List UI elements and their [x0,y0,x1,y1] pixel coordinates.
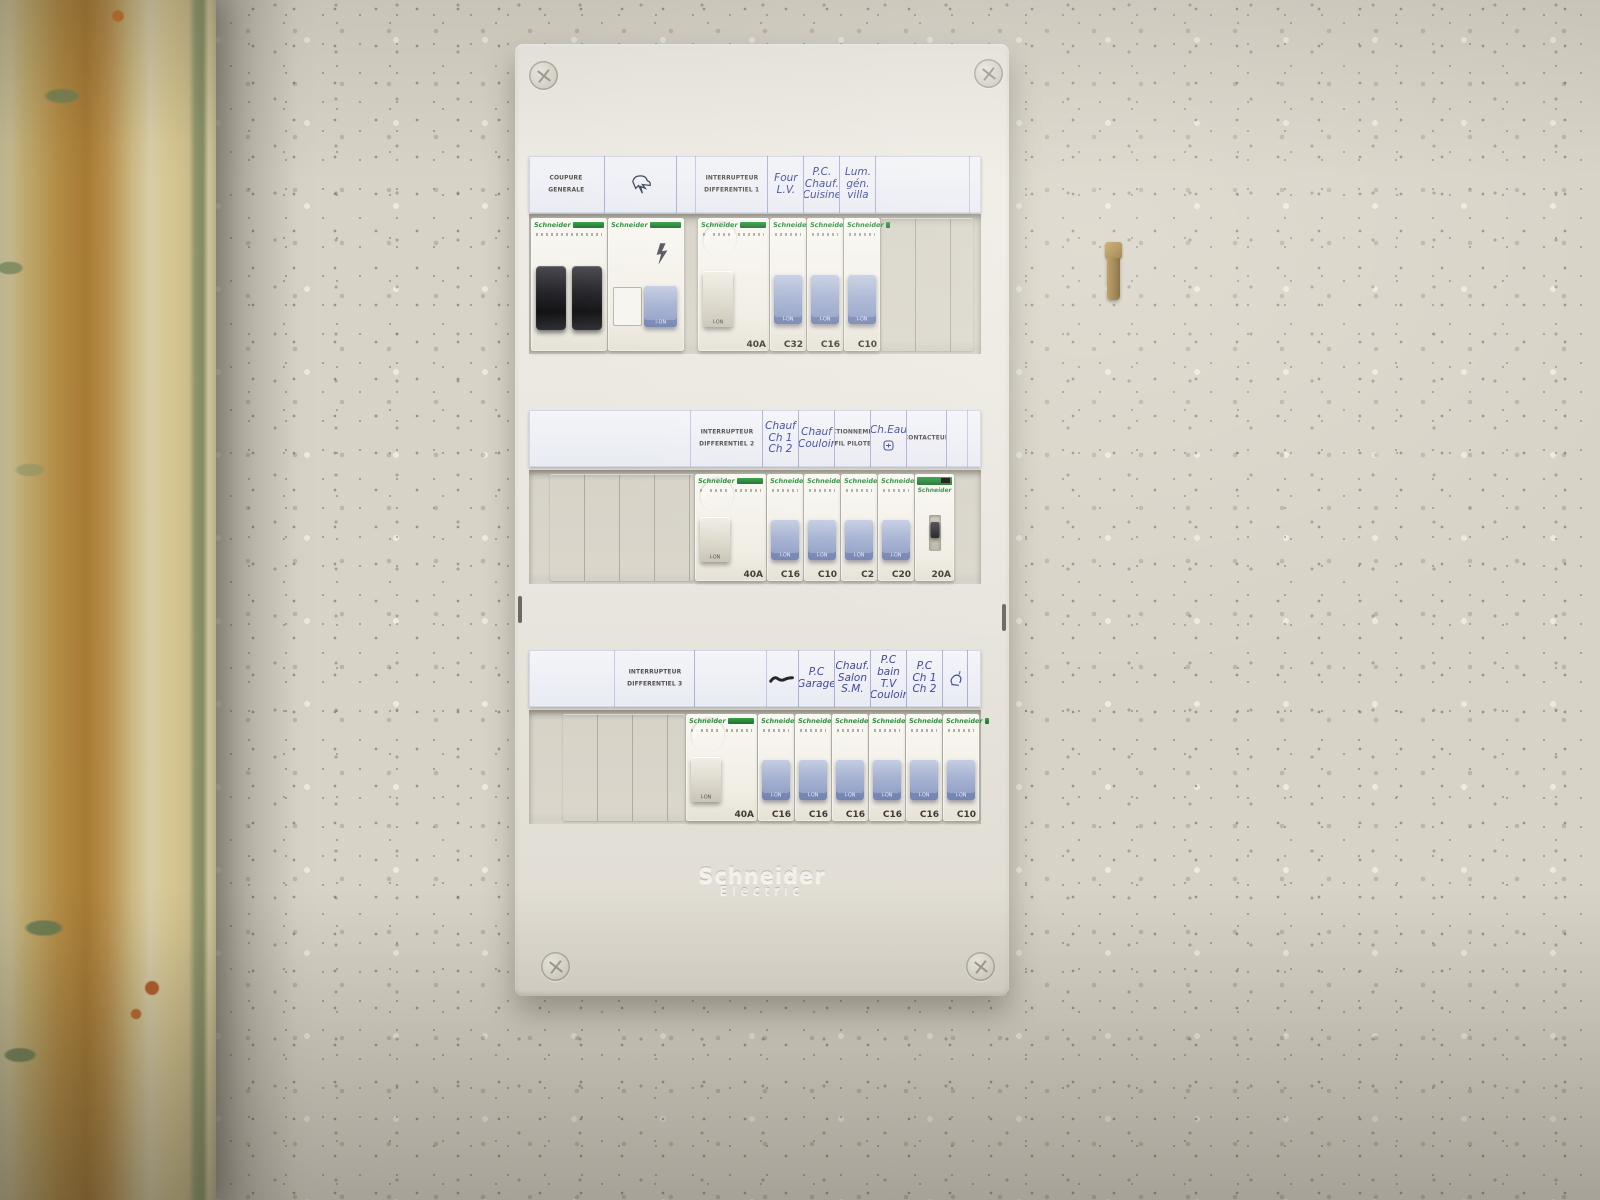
toggle-label: I-ON [913,792,935,798]
schneider-brand: Schneider [686,714,757,726]
label-strip-row-2: INTERRUPTEURDIFFERENTIEL 2ChaufCh 1Ch 2C… [529,410,981,467]
label-cell: P.CbainT.VCouloir [871,650,907,707]
breaker-toggle[interactable]: I-ON [811,274,839,325]
breaker-rating: C16 [821,340,840,350]
breaker-rating: 40A [747,340,767,350]
contactor-green-stripe [917,477,952,485]
schneider-brand-text: Schneider [834,717,872,725]
schneider-brand-bar [985,718,989,724]
photo-scene: COUPUREGENERALEINTERRUPTEURDIFFERENTIEL … [0,0,1600,1200]
schneider-brand-text: Schneider [697,477,735,485]
main-toggle-group [536,266,603,330]
panel-screw [966,952,995,981]
label-cell [876,156,970,213]
schneider-brand-text: Schneider [846,221,884,229]
breaker-toggle[interactable]: I-ON [808,519,836,560]
contactor-switch[interactable] [930,522,939,538]
toggle-label: I-ON [811,552,833,558]
schneider-brand-bar [728,718,754,724]
schneider-brand: Schneider [698,218,769,230]
breaker-toggle[interactable]: I-ON [799,759,827,800]
module-microprint [837,729,863,732]
schneider-brand: Schneider [869,714,905,726]
breaker-toggle[interactable]: I-ON [848,274,876,325]
breaker-rating: C16 [920,810,939,820]
breaker-module: SchneiderI-ONC16 [767,474,803,581]
rail-gap [531,470,549,584]
schneider-brand: Schneider [608,218,684,230]
module-microprint [911,729,937,732]
panel-screw [529,61,558,90]
label-cell: ChaufCouloir [799,410,835,467]
schneider-brand-bar [740,222,766,228]
breaker-toggle[interactable]: I-ON [882,519,910,560]
module-microprint [703,233,764,236]
label-cell: ChaufCh 1Ch 2 [763,410,799,467]
curtain [0,0,216,1200]
label-line: INTERRUPTEUR [628,669,681,676]
label-line: Four [774,173,797,185]
schneider-brand: Schneider [943,714,979,726]
panel-latch-slot [1002,604,1006,631]
schneider-brand: Schneider [804,474,840,486]
breaker-rating: C10 [818,570,837,580]
breaker-module: SchneiderI-ONC2 [841,474,877,581]
label-cell [529,650,615,707]
breaker-rating: C16 [809,810,828,820]
module-microprint [800,729,826,732]
embossed-brand-logo: Schneider Electric [515,864,1009,898]
label-cell [695,650,767,707]
breaker-toggle[interactable]: I-ON [771,519,799,560]
label-cell: P.CCh 1Ch 2 [907,650,943,707]
breaker-module: SchneiderI-ONC16 [807,218,843,351]
module-microprint [948,729,974,732]
schneider-brand-text: Schneider [809,221,847,229]
toggle-label: I-ON [839,792,861,798]
label-line: Lum. [845,167,871,179]
breaker-rating: 20A [932,570,952,580]
toggle-label: I-ON [848,552,870,558]
breaker-toggle[interactable]: I-ON [762,759,790,800]
schneider-brand: Schneider [770,218,806,230]
label-cell [943,650,968,707]
toggle-label: I-ON [706,320,730,326]
label-line: Chauf. [836,661,870,673]
water-heater-icon [882,439,895,452]
contactor-module: Schneider20A [915,474,954,581]
module-microprint [812,233,838,236]
label-line: CONTACTEUR [907,435,947,442]
schneider-brand-text: Schneider [760,717,798,725]
label-line: P.C [809,667,825,679]
surge-protector-module: SchneiderI-ON [608,218,684,351]
label-line: COUPURE [550,175,583,182]
label-cell [677,156,697,213]
breaker-rating: C16 [772,810,791,820]
label-line: L.V. [777,185,796,197]
schneider-brand-text: Schneider [688,717,726,725]
panel-screw [974,59,1003,88]
surge-toggle[interactable]: I-ON [644,285,677,328]
label-line: DIFFERENTIEL 1 [704,186,759,193]
schneider-brand-text: Schneider [769,477,807,485]
module-microprint [536,233,602,236]
wall-hook [1103,242,1125,302]
schneider-brand: Schneider [758,714,794,726]
toggle-label: I-ON [703,554,727,560]
label-cell: Lum.gén.villa [840,156,876,213]
differential-switch-module: SchneiderI-ON40A [698,218,769,351]
breaker-rating: C16 [846,810,865,820]
schneider-brand: Schneider [832,714,868,726]
schneider-brand-bar [573,222,604,228]
breaker-module: SchneiderI-ONC10 [804,474,840,581]
module-microprint [809,489,835,492]
toggle-label: I-ON [876,792,898,798]
label-line: INTERRUPTEUR [706,175,759,182]
lightning-print-icon [649,239,675,269]
label-cell: SECTIONNEMENTFIL PILOTE [835,410,871,467]
module-microprint [846,489,872,492]
breaker-toggle[interactable]: I-ON [836,759,864,800]
label-cell: P.CGarage [799,650,835,707]
breaker-module: SchneiderI-ONC16 [795,714,831,821]
label-strip-row-3: INTERRUPTEURDIFFERENTIEL 3P.CGarageChauf… [529,650,981,707]
schneider-brand: Schneider [878,474,914,486]
schneider-brand-text: Schneider [533,221,571,229]
schneider-brand-bar [650,222,681,228]
toggle-label: I-ON [851,317,873,323]
differential-switch-module: SchneiderI-ON40A [695,474,766,581]
breaker-row-1: SchneiderSchneiderI-ONSchneiderI-ON40ASc… [529,214,981,354]
label-cell: INTERRUPTEURDIFFERENTIEL 1 [696,156,768,213]
blank-cover [563,714,685,821]
label-cell: Ch.Eau [871,410,907,467]
module-microprint [874,729,900,732]
breaker-rating: C16 [781,570,800,580]
breaker-row-3: SchneiderI-ON40ASchneiderI-ONC16Schneide… [529,710,981,824]
label-line: Ch.Eau [871,425,907,437]
schneider-brand: Schneider [906,714,942,726]
scribble-icon [769,674,795,685]
blank-cover [550,474,694,581]
label-line: FIL PILOTE [835,440,871,447]
label-cell [767,650,799,707]
label-cell: Chauf.SalonS.M. [835,650,871,707]
label-cell [529,410,691,467]
module-microprint [691,729,752,732]
breaker-rating: C10 [858,340,877,350]
differential-toggle[interactable]: I-ON [703,271,733,327]
module-microprint [763,729,789,732]
fuse-box-panel: COUPUREGENERALEINTERRUPTEURDIFFERENTIEL … [515,44,1009,996]
breaker-module: SchneiderI-ONC16 [906,714,942,821]
schneider-brand-bar [737,478,763,484]
label-line: Chauf [765,421,796,433]
label-cell [947,410,969,467]
schneider-brand: Schneider [807,218,843,230]
breaker-rating: C10 [957,810,976,820]
label-line: villa [847,190,868,202]
module-microprint [772,489,798,492]
toggle-label: I-ON [885,552,907,558]
lightning-doodle-icon [629,171,652,200]
label-line: DIFFERENTIEL 3 [627,680,682,687]
lamp-doodle-icon [948,671,963,688]
label-line: Chauf [801,427,832,439]
breaker-rating: C2 [861,570,874,580]
label-line: DIFFERENTIEL 2 [699,440,754,447]
main-breaker-toggle[interactable] [536,266,566,330]
label-line: Garage [799,679,835,691]
differential-toggle[interactable]: I-ON [691,757,721,802]
label-line: Couloir [799,439,835,451]
label-cell [605,156,677,213]
breaker-toggle[interactable]: I-ON [947,759,975,800]
breaker-rating: C16 [883,810,902,820]
schneider-brand-text: Schneider [843,477,881,485]
breaker-toggle[interactable]: I-ON [845,519,873,560]
schneider-brand-text: Schneider [871,717,909,725]
schneider-brand-text: Schneider [915,487,955,494]
surge-label-window [613,287,642,326]
schneider-brand: Schneider [844,218,880,230]
differential-toggle[interactable]: I-ON [700,517,730,562]
label-line: Ch 2 [912,684,936,696]
schneider-brand-text: Schneider [806,477,844,485]
label-line: Couloir [871,690,907,702]
label-cell: P.C.Chauf.Cuisine [804,156,840,213]
label-line: P.C [917,661,933,673]
breaker-module: SchneiderI-ONC16 [832,714,868,821]
label-line: S.M. [841,684,863,696]
toggle-label: I-ON [774,552,796,558]
label-strip-row-1: COUPUREGENERALEINTERRUPTEURDIFFERENTIEL … [529,156,981,213]
label-cell: INTERRUPTEURDIFFERENTIEL 3 [615,650,694,707]
label-line: P.C. [812,167,831,179]
panel-latch-slot [518,596,522,623]
breaker-toggle[interactable]: I-ON [774,274,802,325]
schneider-brand: Schneider [767,474,803,486]
module-microprint [700,489,761,492]
breaker-module: SchneiderI-ONC32 [770,218,806,351]
schneider-brand-text: Schneider [797,717,835,725]
wall-hook-stem [1107,258,1120,300]
main-breaker-module: Schneider [531,218,607,351]
toggle-label: I-ON [647,320,674,326]
rail-gap [685,214,697,354]
breaker-toggle[interactable]: I-ON [910,759,938,800]
module-microprint [849,233,875,236]
label-line: Ch 2 [768,444,792,456]
breaker-toggle[interactable]: I-ON [873,759,901,800]
toggle-label: I-ON [694,794,718,800]
wall-hook-head [1105,242,1122,259]
label-line: GENERALE [548,186,584,193]
label-cell: CONTACTEUR [907,410,947,467]
toggle-label: I-ON [777,317,799,323]
breaker-rating: C32 [784,340,803,350]
schneider-brand: Schneider [795,714,831,726]
breaker-rating: 40A [735,810,755,820]
main-breaker-toggle[interactable] [572,266,602,330]
breaker-module: SchneiderI-ONC16 [758,714,794,821]
rail-gap [531,710,562,824]
schneider-brand-text: Schneider [772,221,810,229]
schneider-brand-text: Schneider [945,717,983,725]
breaker-row-2: SchneiderI-ON40ASchneiderI-ONC16Schneide… [529,470,981,584]
label-cell: INTERRUPTEURDIFFERENTIEL 2 [691,410,763,467]
breaker-module: SchneiderI-ONC16 [869,714,905,821]
schneider-brand-text: Schneider [610,221,648,229]
breaker-module: SchneiderI-ONC10 [844,218,880,351]
label-line: INTERRUPTEUR [700,429,753,436]
breaker-rating: C20 [892,570,911,580]
toggle-label: I-ON [765,792,787,798]
schneider-brand: Schneider [841,474,877,486]
panel-screw [541,952,570,981]
module-microprint [883,489,909,492]
module-microprint [775,233,801,236]
brand-logo-line2: Electric [515,884,1009,898]
contactor-indicator-window [941,478,950,483]
label-line: SECTIONNEMENT [835,429,871,436]
schneider-brand: Schneider [695,474,766,486]
breaker-module: SchneiderI-ONC20 [878,474,914,581]
schneider-brand-text: Schneider [908,717,946,725]
breaker-module: SchneiderI-ONC10 [943,714,979,821]
schneider-brand-text: Schneider [880,477,918,485]
label-cell: COUPUREGENERALE [529,156,605,213]
toggle-label: I-ON [814,317,836,323]
toggle-label: I-ON [950,792,972,798]
differential-switch-module: SchneiderI-ON40A [686,714,757,821]
blank-cover [881,218,973,351]
schneider-brand-text: Schneider [700,221,738,229]
label-line: Cuisine [804,190,840,202]
breaker-rating: 40A [744,570,764,580]
schneider-brand: Schneider [531,218,607,230]
toggle-label: I-ON [802,792,824,798]
label-cell: FourL.V. [768,156,804,213]
label-line: bain [877,667,900,679]
